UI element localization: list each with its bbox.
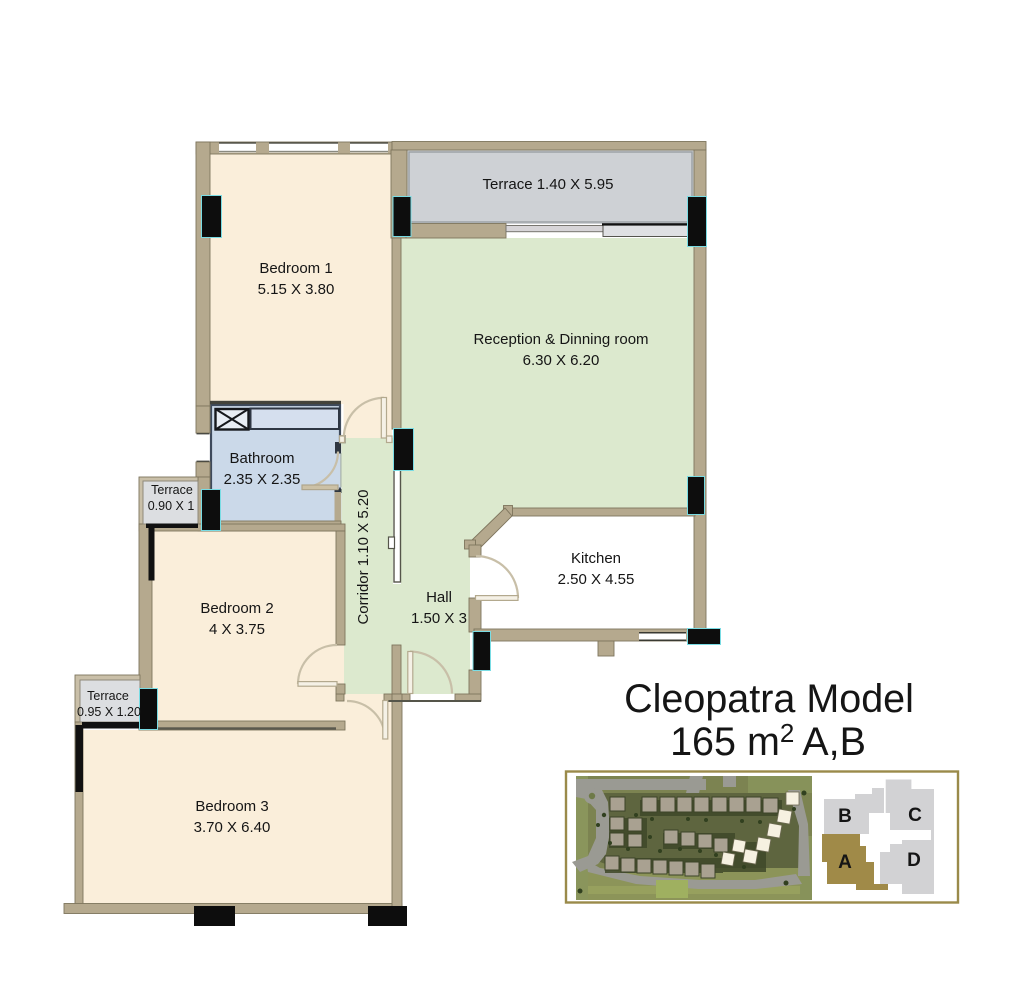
- svg-text:Kitchen: Kitchen: [571, 550, 621, 567]
- svg-text:165 m2 A,B: 165 m2 A,B: [670, 718, 866, 764]
- svg-text:C: C: [908, 805, 922, 826]
- svg-text:6.30 X 6.20: 6.30 X 6.20: [523, 352, 600, 369]
- svg-text:1.50 X 3: 1.50 X 3: [411, 610, 467, 627]
- svg-text:Terrace: Terrace: [87, 689, 129, 703]
- svg-text:B: B: [838, 806, 852, 827]
- svg-text:A: A: [838, 852, 852, 873]
- svg-text:Hall: Hall: [426, 589, 452, 606]
- svg-text:Bedroom 2: Bedroom 2: [200, 600, 273, 617]
- svg-text:Bedroom 1: Bedroom 1: [259, 260, 332, 277]
- svg-text:Terrace 1.40 X 5.95: Terrace 1.40 X 5.95: [483, 176, 614, 193]
- svg-text:Reception & Dinning room: Reception & Dinning room: [473, 331, 648, 348]
- svg-text:2.35 X 2.35: 2.35 X 2.35: [224, 471, 301, 488]
- svg-text:3.70 X 6.40: 3.70 X 6.40: [194, 819, 271, 836]
- svg-text:4 X 3.75: 4 X 3.75: [209, 621, 265, 638]
- svg-text:Cleopatra Model: Cleopatra Model: [624, 677, 914, 721]
- svg-text:D: D: [907, 850, 921, 871]
- svg-text:Bedroom 3: Bedroom 3: [195, 798, 268, 815]
- svg-text:0.90 X 1: 0.90 X 1: [148, 499, 195, 513]
- svg-text:5.15 X 3.80: 5.15 X 3.80: [258, 281, 335, 298]
- svg-text:2.50 X 4.55: 2.50 X 4.55: [558, 571, 635, 588]
- svg-text:Terrace: Terrace: [151, 483, 193, 497]
- svg-text:Corridor 1.10 X 5.20: Corridor 1.10 X 5.20: [355, 489, 372, 624]
- svg-text:Bathroom: Bathroom: [229, 450, 294, 467]
- svg-text:0.95 X 1.20: 0.95 X 1.20: [77, 705, 141, 719]
